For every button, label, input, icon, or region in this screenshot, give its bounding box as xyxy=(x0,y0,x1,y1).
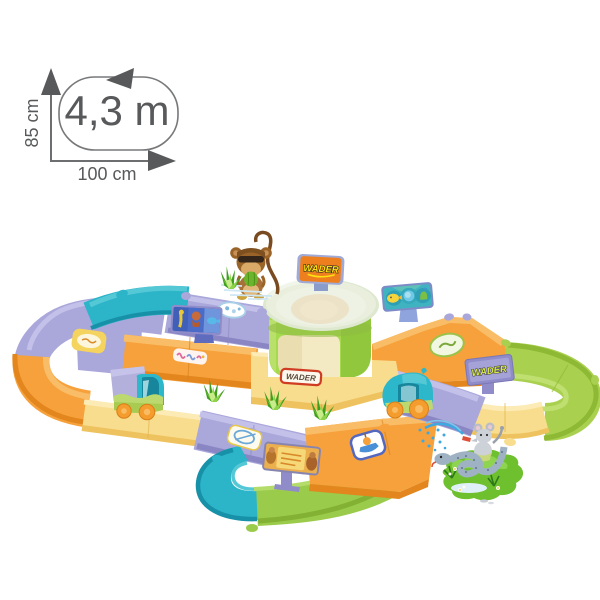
svg-text:4,3 m: 4,3 m xyxy=(64,87,169,134)
svg-text:85 cm: 85 cm xyxy=(22,98,42,147)
svg-text:100 cm: 100 cm xyxy=(77,164,136,184)
